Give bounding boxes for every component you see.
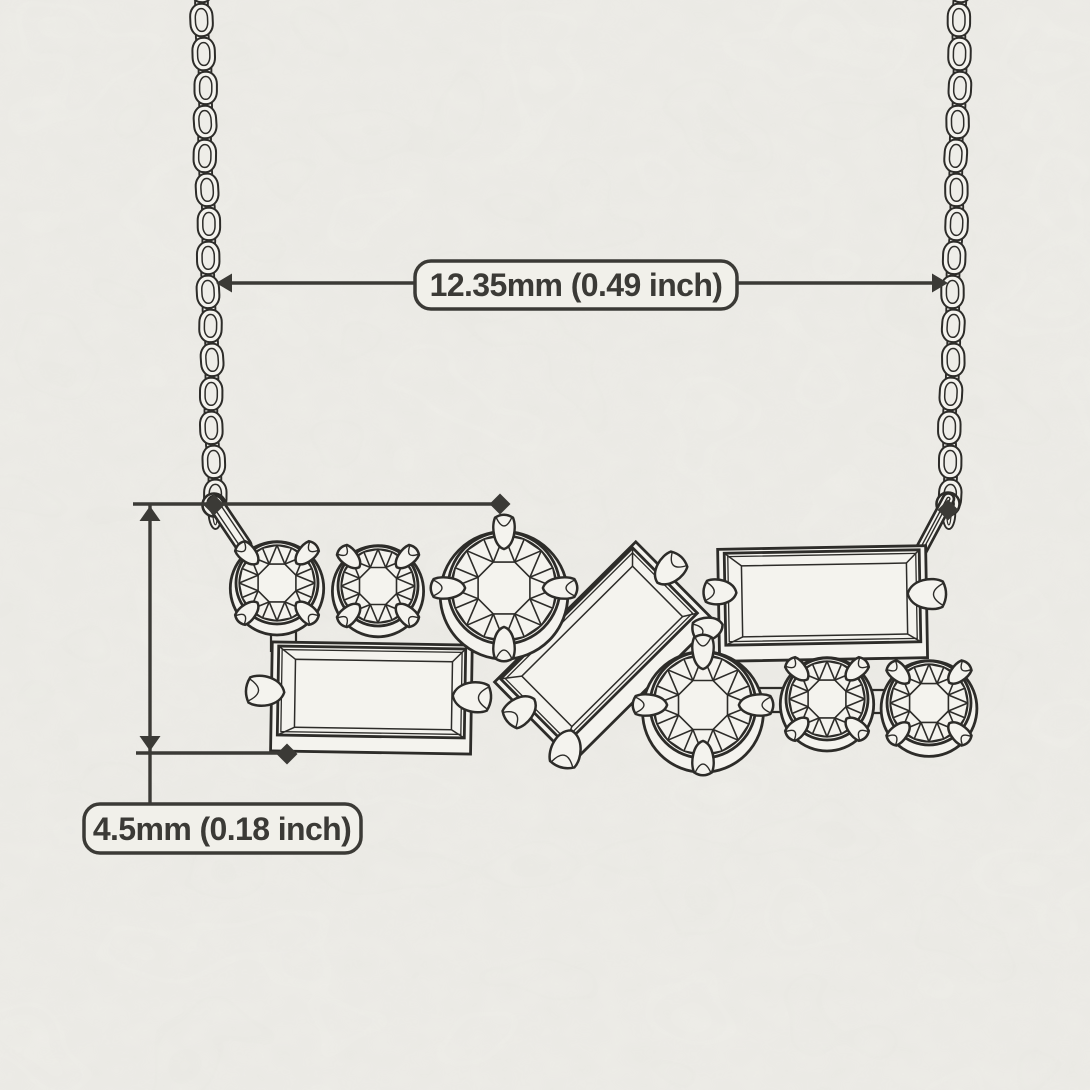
svg-text:4.5mm (0.18 inch): 4.5mm (0.18 inch) [93,811,351,847]
svg-text:12.35mm (0.49 inch): 12.35mm (0.49 inch) [430,267,723,303]
